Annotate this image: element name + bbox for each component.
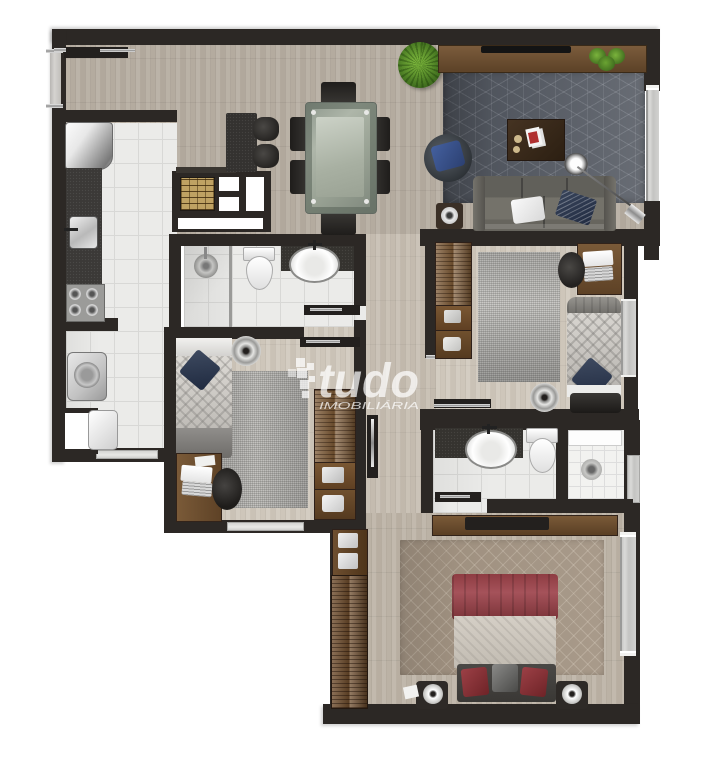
- svg-text:IMOBILIÁRIA: IMOBILIÁRIA: [319, 399, 419, 412]
